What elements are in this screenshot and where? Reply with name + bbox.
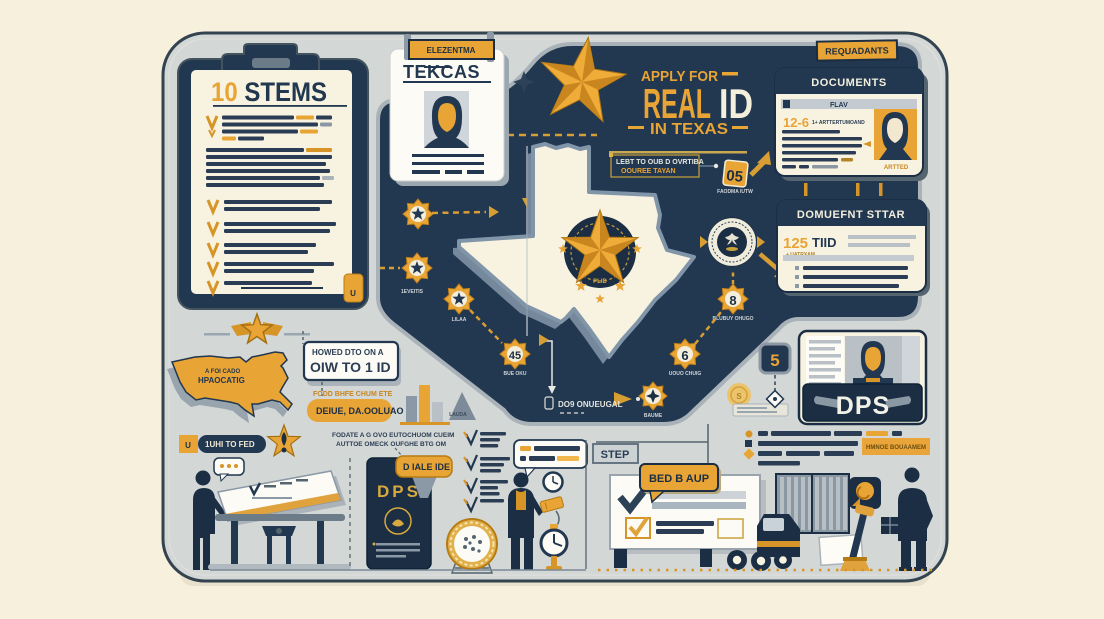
svg-text:DPS: DPS [377,482,421,501]
svg-text:BED B AUP: BED B AUP [649,473,709,485]
svg-text:05: 05 [725,167,743,186]
svg-text:12-6: 12-6 [783,115,809,130]
svg-text:125: 125 [783,235,808,252]
svg-text:ELEZENTMA: ELEZENTMA [427,46,476,55]
svg-text:DOCUMENTS: DOCUMENTS [811,77,886,89]
svg-text:TEKCAS: TEKCAS [403,62,480,82]
svg-text:IN TEXAS: IN TEXAS [650,121,728,138]
svg-text:5: 5 [770,351,779,370]
svg-text:S: S [736,392,742,401]
svg-text:OIW TO 1 ID: OIW TO 1 ID [310,359,391,375]
svg-text:D IALE IDE: D IALE IDE [403,462,450,472]
svg-text:STEP: STEP [601,449,630,461]
svg-text:AUTTOE OMECK OUFGHE BTG OM: AUTTOE OMECK OUFGHE BTG OM [336,441,446,448]
svg-text:REQUADANTS: REQUADANTS [825,45,889,56]
svg-text:LEBT TO OUB D OVRTIBA: LEBT TO OUB D OVRTIBA [616,159,704,166]
svg-text:LILAA: LILAA [452,317,467,323]
svg-text:DEIUE, DA.OOLUAO: DEIUE, DA.OOLUAO [316,406,404,416]
svg-text:LAUDA: LAUDA [449,412,467,418]
svg-text:DPS: DPS [836,392,890,420]
svg-text:6: 6 [681,348,688,363]
svg-text:BLUBUY OHUGO: BLUBUY OHUGO [712,316,753,322]
svg-text:8: 8 [729,293,736,308]
svg-text:HOWED DTO ON A: HOWED DTO ON A [312,348,384,357]
svg-text:FLAV: FLAV [830,102,848,109]
svg-text:OOUREE TAYAN: OOUREE TAYAN [621,168,676,175]
svg-text:UOUO CHUIG: UOUO CHUIG [669,371,702,377]
svg-text:BAUME: BAUME [644,413,663,419]
svg-text:FODD BHFE CHUM ETE: FODD BHFE CHUM ETE [313,391,393,398]
svg-text:ARTTED: ARTTED [884,165,909,171]
svg-text:HMNOE BOUAAMEM: HMNOE BOUAAMEM [866,445,926,451]
svg-text:10 STEMS: 10 STEMS [211,77,327,107]
svg-text:45: 45 [509,350,521,362]
svg-text:A FOI CADO: A FOI CADO [205,369,240,375]
svg-text:U: U [350,289,356,298]
svg-text:ID: ID [719,80,753,127]
svg-text:PLID: PLID [593,279,607,285]
svg-text:HPAOCATIG: HPAOCATIG [198,376,245,385]
svg-text:DO9 ONUEUGAL: DO9 ONUEUGAL [558,400,623,409]
svg-text:FAODMA IUTW: FAODMA IUTW [717,189,753,195]
svg-text:U: U [185,441,191,450]
svg-text:1EVEITIS: 1EVEITIS [401,289,424,295]
svg-text:1UHI TO FED: 1UHI TO FED [205,440,255,449]
svg-text:DOMUEFNT STTAR: DOMUEFNT STTAR [797,209,905,221]
svg-text:BUE OKU: BUE OKU [503,371,526,377]
svg-text:REAL: REAL [643,80,711,127]
svg-text:TIID: TIID [812,235,837,250]
svg-text:1+ ARTTERTUMOAND: 1+ ARTTERTUMOAND [812,120,865,126]
svg-text:FODATE A G OVO EUTOCHUOM CUEIM: FODATE A G OVO EUTOCHUOM CUEIM [332,432,454,439]
